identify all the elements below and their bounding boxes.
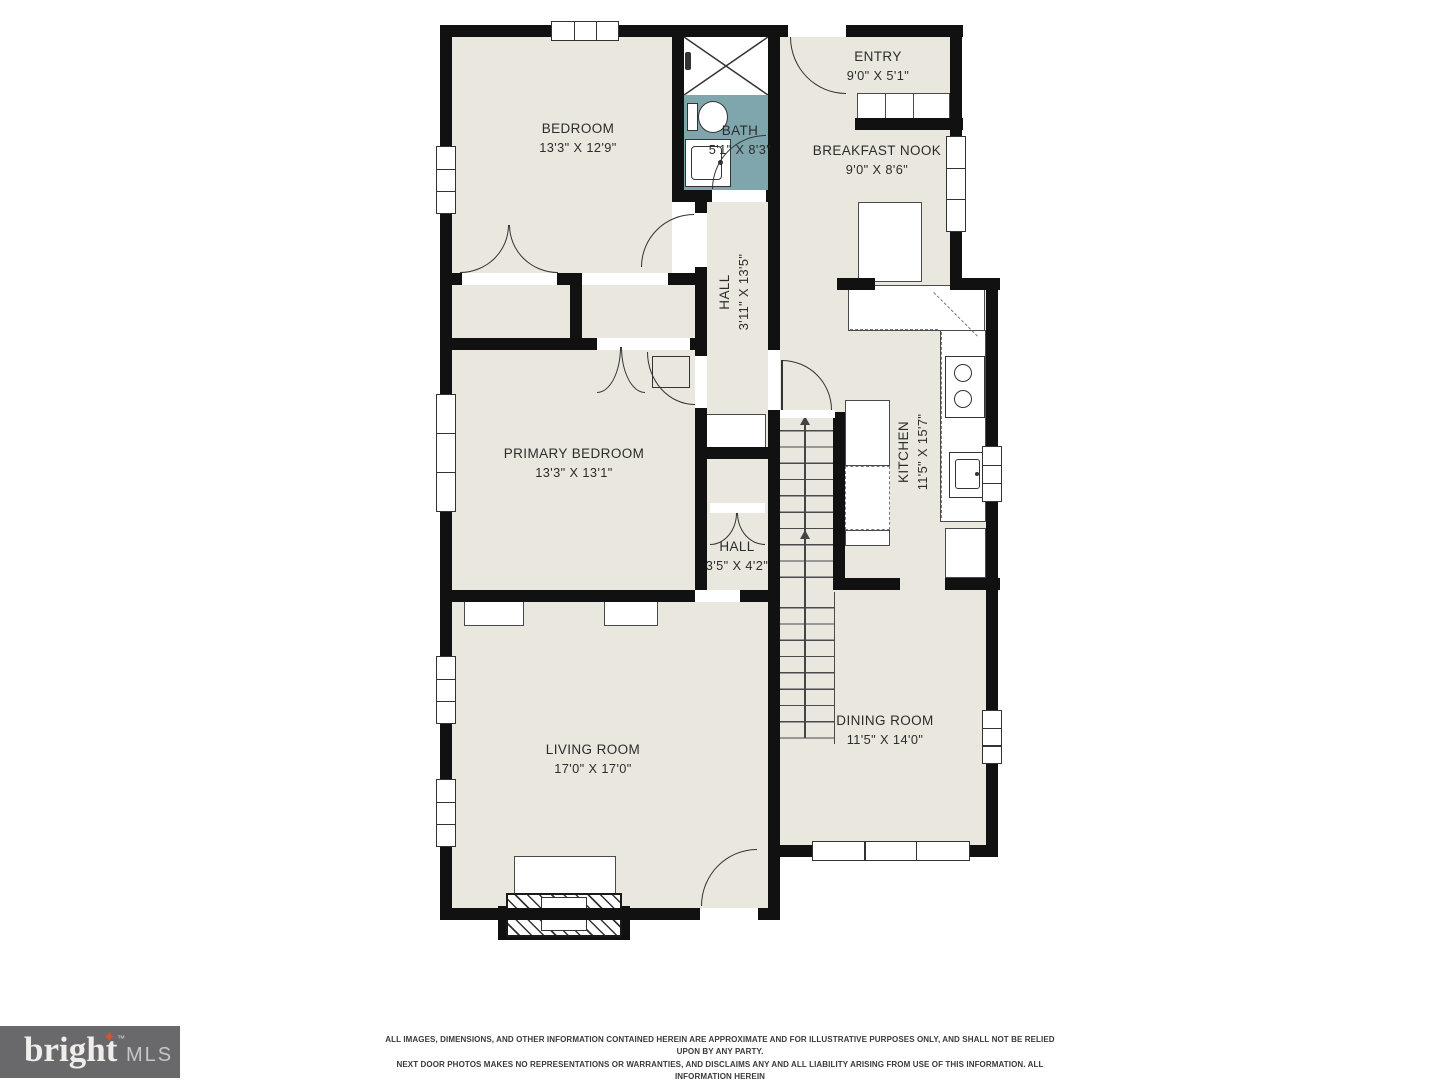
entry-step-line [913,93,914,120]
room-name: BREAKFAST NOOK [797,142,957,160]
bright-mls-logo: bright ✦ ™ MLS [0,1026,180,1078]
room-name: HALL [716,232,734,352]
room-dims: 5'1" X 8'3" [688,142,792,159]
window [436,146,456,214]
living-room-builtin [604,600,658,626]
stove-burner-icon [954,390,972,408]
closet-opening [710,503,765,513]
entry-step-line [885,93,886,120]
room-label-kitchen: KITCHEN 11'5" X 15'7" [895,377,935,527]
kitchen-peninsula-dashed [845,466,890,530]
room-name: BATH [688,122,792,140]
breakfast-nook-counter [858,202,922,282]
wall [837,278,875,290]
wall [855,118,963,130]
stairs-direction-line [804,422,806,738]
fireplace-hearth [514,856,616,894]
room-label-hall-lower: HALL 3'5" X 4'2" [687,538,787,574]
room-name: DINING ROOM [785,712,985,730]
logo-trademark: ™ [117,1034,125,1043]
door-opening [712,190,766,202]
door-opening [700,908,758,920]
kitchen-peninsula-end [845,530,890,546]
upper-cabinet-dashed-line [941,332,942,518]
door-opening [695,213,707,267]
wall [768,410,780,920]
kitchen-peninsula-counter [845,400,890,466]
wall [768,37,780,350]
wall [570,285,582,338]
room-label-primary-bedroom: PRIMARY BEDROOM 13'3" X 13'1" [474,445,674,481]
room-dims: 9'0" X 8'6" [797,162,957,179]
wall [440,25,963,37]
logo-mls-text: MLS [126,1044,173,1067]
room-dims: 11'5" X 14'0" [785,732,985,749]
room-label-dining-room: DINING ROOM 11'5" X 14'0" [785,712,985,748]
living-room-builtin [464,600,524,626]
window [812,841,970,861]
shower-valve-icon [685,52,691,70]
room-label-living-room: LIVING ROOM 17'0" X 17'0" [493,741,693,777]
room-name: BEDROOM [478,120,678,138]
room-dims: 11'5" X 15'7" [915,377,932,527]
wall [833,412,845,590]
logo-star-icon: ✦ [103,1028,116,1046]
disclaimer-text: ALL IMAGES, DIMENSIONS, AND OTHER INFORM… [380,1034,1060,1080]
entry-steps [857,93,950,120]
kitchen-counter-bottom-right [945,528,986,578]
room-dims: 3'5" X 4'2" [687,558,787,575]
upper-cabinet-dashed-line [850,329,938,330]
door-opening [695,590,740,602]
room-dims: 17'0" X 17'0" [493,761,693,778]
door-opening [695,356,707,408]
room-name: HALL [687,538,787,556]
room-label-hall-upper: HALL 3'11" X 13'5" [716,232,756,352]
room-label-breakfast-nook: BREAKFAST NOOK 9'0" X 8'6" [797,142,957,178]
door-opening [788,25,846,37]
window [551,21,619,41]
window [982,710,1002,764]
window [436,779,456,847]
disclaimer-line: NEXT DOOR PHOTOS MAKES NO REPRESENTATION… [380,1059,1060,1080]
room-dims: 9'0" X 5'1" [818,68,938,85]
window [982,446,1002,502]
wall [986,278,998,857]
room-dims: 13'3" X 13'1" [474,465,674,482]
door-opening [768,350,780,410]
room-label-bath: BATH 5'1" X 8'3" [688,122,792,158]
shower-stall [684,37,768,95]
stairs-up-arrow [800,530,810,539]
stove-burner-icon [954,364,972,382]
room-name: ENTRY [818,48,938,66]
room-name: KITCHEN [895,377,913,527]
floor-plan-page: BEDROOM 13'3" X 12'9" BATH 5'1" X 8'3" E… [0,0,1440,1080]
door-opening [582,273,668,285]
stair-threshold [780,410,835,418]
room-dims: 13'3" X 12'9" [478,140,678,157]
room-label-bedroom: BEDROOM 13'3" X 12'9" [478,120,678,156]
door-opening [462,273,557,285]
room-name: LIVING ROOM [493,741,693,759]
room-name: PRIMARY BEDROOM [474,445,674,463]
room-dims: 3'11" X 13'5" [736,232,753,352]
kitchen-faucet-dot [975,472,979,476]
room-label-entry: ENTRY 9'0" X 5'1" [818,48,938,84]
hall-linen-closet [703,414,766,448]
window [436,656,456,724]
window [436,394,456,512]
disclaimer-line: ALL IMAGES, DIMENSIONS, AND OTHER INFORM… [380,1034,1060,1059]
